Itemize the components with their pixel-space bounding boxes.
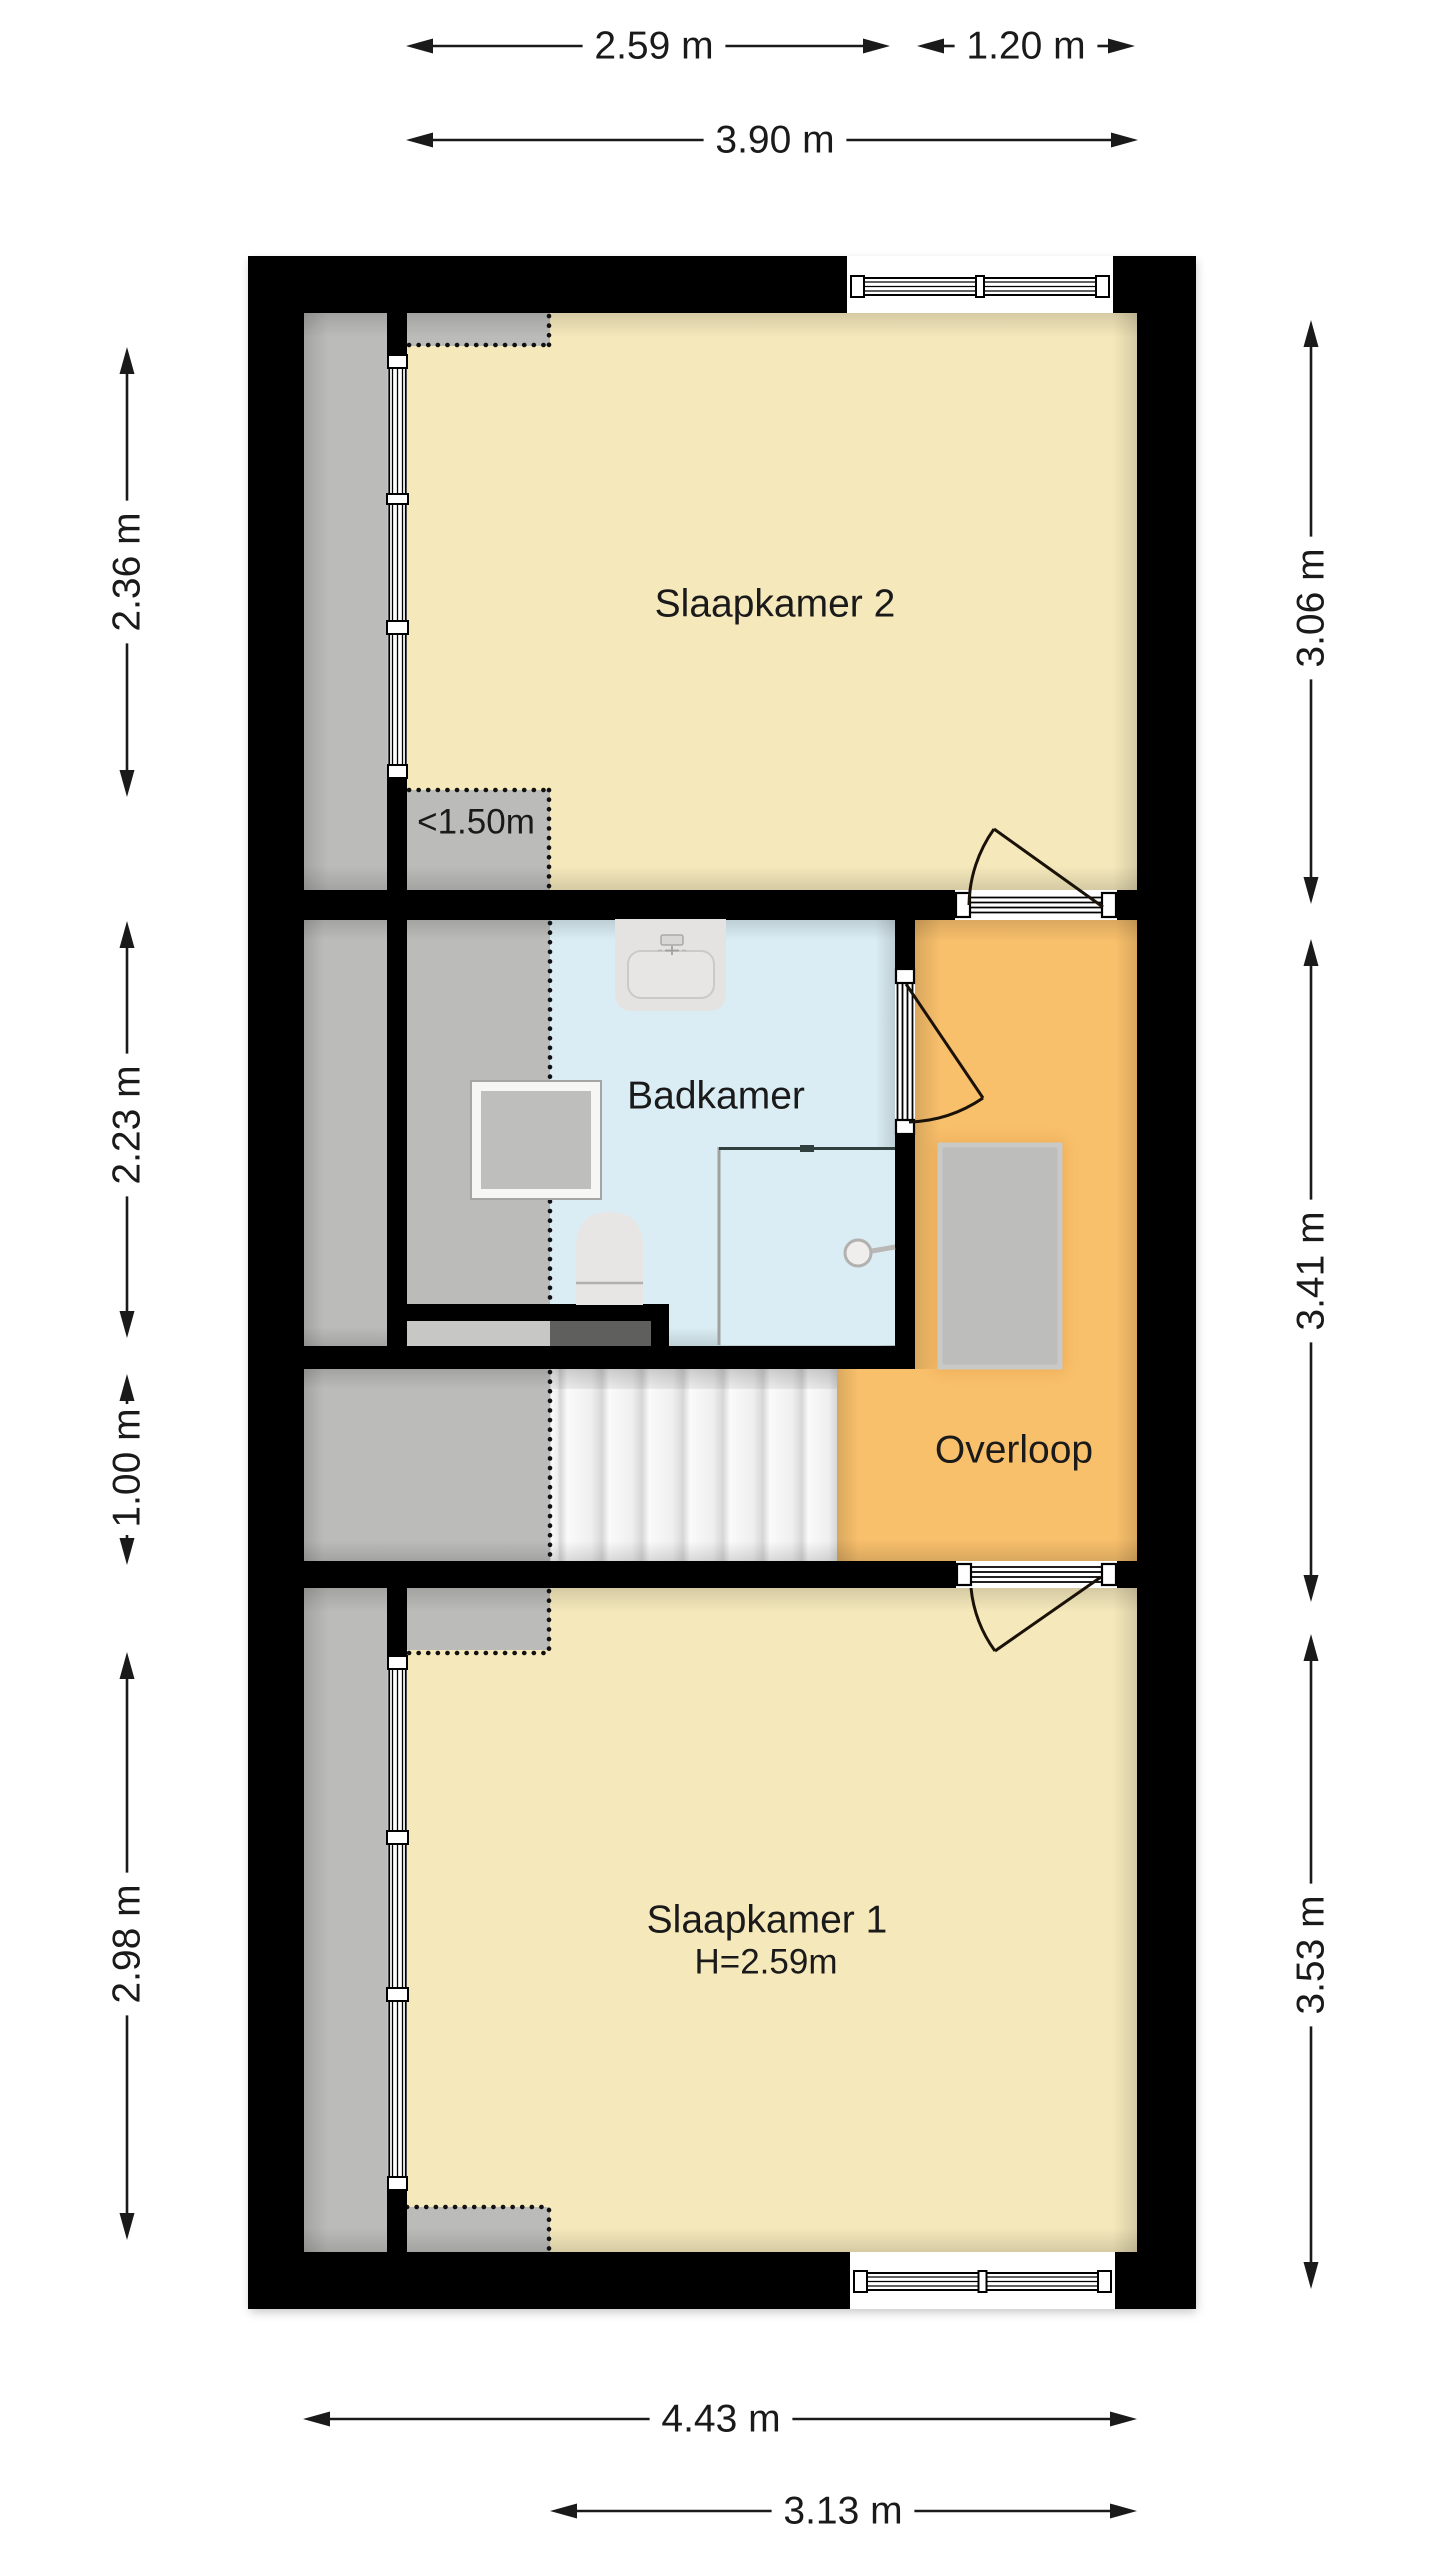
svg-text:4.43 m: 4.43 m bbox=[661, 2398, 780, 2441]
svg-text:3.53 m: 3.53 m bbox=[1290, 1895, 1333, 2014]
svg-text:Slaapkamer 2: Slaapkamer 2 bbox=[655, 583, 896, 626]
svg-text:1.20 m: 1.20 m bbox=[966, 25, 1085, 68]
svg-text:3.41 m: 3.41 m bbox=[1290, 1211, 1333, 1330]
svg-text:Slaapkamer 1: Slaapkamer 1 bbox=[647, 1899, 888, 1942]
svg-text:<1.50m: <1.50m bbox=[417, 803, 535, 842]
svg-text:H=2.59m: H=2.59m bbox=[695, 1943, 838, 1982]
svg-text:1.00 m: 1.00 m bbox=[106, 1408, 149, 1527]
svg-text:2.98 m: 2.98 m bbox=[106, 1884, 149, 2003]
svg-text:3.13 m: 3.13 m bbox=[783, 2490, 902, 2533]
svg-text:2.36 m: 2.36 m bbox=[106, 512, 149, 631]
svg-text:Overloop: Overloop bbox=[935, 1429, 1093, 1472]
svg-text:Badkamer: Badkamer bbox=[627, 1075, 805, 1118]
svg-text:2.59 m: 2.59 m bbox=[594, 25, 713, 68]
svg-text:3.06 m: 3.06 m bbox=[1290, 548, 1333, 667]
svg-text:2.23 m: 2.23 m bbox=[106, 1065, 149, 1184]
svg-text:3.90 m: 3.90 m bbox=[715, 119, 834, 162]
